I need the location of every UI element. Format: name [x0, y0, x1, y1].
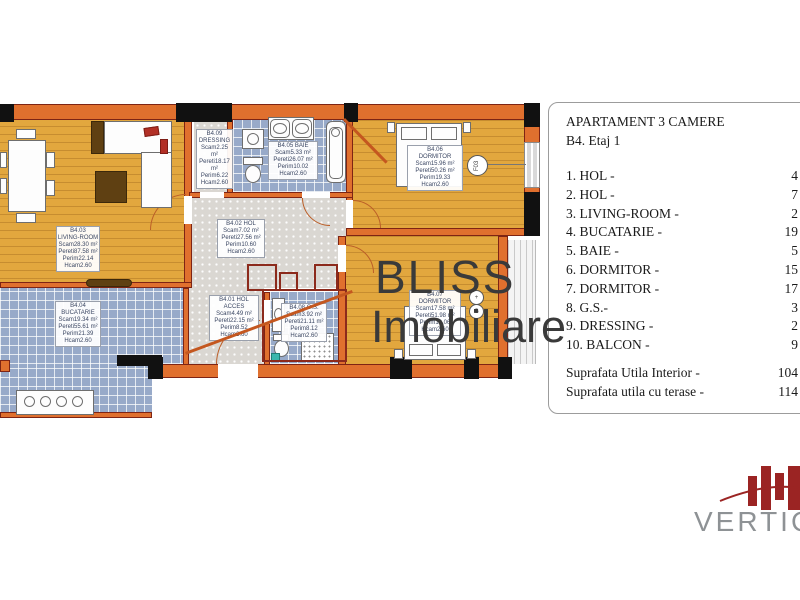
chair	[0, 178, 7, 194]
area-row-label: 9. DRESSING -	[566, 317, 653, 336]
chair	[46, 180, 55, 196]
nightstand	[387, 122, 395, 133]
nightstand	[467, 349, 476, 359]
room-label-b4-04: B4.04BUCATARIEScam19.34 m²Pereti55.61 m²…	[55, 301, 101, 347]
pillow	[431, 127, 457, 140]
utility-marker: G	[469, 304, 484, 319]
panel-totals: Suprafata Utila Interior -104Suprafata u…	[566, 364, 798, 402]
page: { "panel": { "title": "APARTAMENT 3 CAME…	[0, 0, 800, 600]
area-row-label: 5. BAIE -	[566, 242, 619, 261]
area-row-label: 2. HOL -	[566, 186, 615, 205]
dining-table	[8, 140, 46, 212]
gs-fixture	[271, 353, 280, 362]
area-row-value: 5	[791, 242, 798, 261]
room-label-b4-02: B4.02 HOLScam7.02 m²Pereti27.56 m²Perim1…	[217, 219, 265, 258]
area-row-value: 4	[791, 167, 798, 186]
pillow	[409, 344, 433, 356]
utility-marker: +	[469, 290, 484, 305]
chair	[16, 129, 36, 139]
window-tag-f03: F03	[467, 155, 488, 176]
area-row-value: 17	[785, 280, 799, 299]
area-row: 8. G.S.-3	[566, 299, 798, 318]
utility-marker-glyph: +	[475, 295, 479, 301]
window-leader-line	[486, 164, 526, 165]
brand-logo-text: VERTICA	[694, 506, 800, 538]
wall-kitchen-hall	[183, 288, 189, 366]
door-opening	[338, 245, 346, 272]
entry-door-opening	[218, 364, 258, 378]
area-row: 6. DORMITOR -15	[566, 261, 798, 280]
apartment-info-panel: APARTAMENT 3 CAMERE B4. Etaj 1 1. HOL -4…	[548, 102, 800, 414]
area-row: 7. DORMITOR -17	[566, 280, 798, 299]
balcony-railing	[508, 240, 536, 364]
wall-bottom	[148, 364, 512, 378]
utility-marker-glyph: G	[474, 309, 479, 315]
pillow	[437, 344, 461, 356]
room-label-b4-03: B4.03LIVING-ROOMScam28.30 m²Pereti87.58 …	[56, 226, 100, 272]
sofa	[141, 152, 172, 208]
total-row-value: 114	[778, 383, 798, 402]
column-block	[0, 104, 14, 122]
total-row-label: Suprafata utila cu terase -	[566, 383, 704, 402]
window	[524, 142, 540, 188]
area-row-value: 2	[791, 205, 798, 224]
area-row-value: 15	[785, 261, 799, 280]
panel-items: 1. HOL -42. HOL -73. LIVING-ROOM -24. BU…	[566, 167, 798, 355]
washing-machine-door	[247, 133, 259, 145]
area-row-value: 9	[791, 336, 798, 355]
column-block	[524, 192, 540, 236]
wall-bedroom-divider	[346, 228, 540, 236]
area-row-label: 10. BALCON -	[566, 336, 650, 355]
column-block	[524, 103, 540, 127]
chair	[0, 152, 7, 168]
total-row: Suprafata Utila Interior -104	[566, 364, 798, 383]
area-row: 10. BALCON -9	[566, 336, 798, 355]
coffee-table	[95, 171, 127, 203]
door-opening	[346, 200, 353, 228]
stove-burner	[24, 396, 35, 407]
total-row: Suprafata utila cu terase -114	[566, 383, 798, 402]
total-row-label: Suprafata Utila Interior -	[566, 364, 700, 383]
area-row-value: 19	[785, 223, 799, 242]
area-row-label: 3. LIVING-ROOM -	[566, 205, 679, 224]
column-block	[464, 357, 479, 379]
column-block	[148, 357, 163, 379]
tv-console	[86, 279, 132, 287]
nightstand	[394, 349, 403, 359]
chair	[46, 152, 55, 168]
bathtub-drain	[331, 128, 340, 137]
area-row: 3. LIVING-ROOM -2	[566, 205, 798, 224]
toilet-bowl	[245, 165, 261, 183]
nightstand	[463, 122, 471, 133]
door-opening	[264, 300, 270, 324]
room-label-b4-08: B4.08 G.S.Scam3.92 m²Pereti21.11 m²Perim…	[281, 303, 327, 342]
stove-burner	[40, 396, 51, 407]
wall-bedroom2-right	[498, 236, 508, 366]
room-label-b4-05: B4.05 BAIEScam5.33 m²Pereti26.07 m²Perim…	[268, 141, 318, 180]
area-row-label: 1. HOL -	[566, 167, 615, 186]
area-row: 1. HOL -4	[566, 167, 798, 186]
chair	[16, 213, 36, 223]
room-label-b4-09: B4.09DRESSINGScam2.25 m²Pereti18.17 m²Pe…	[196, 129, 233, 189]
room-label-b4-01: B4.01 HOLACCESScam4.49 m²Pereti22.15 m²P…	[209, 295, 259, 341]
area-row-label: 6. DORMITOR -	[566, 261, 659, 280]
sofa-cushion	[160, 139, 168, 154]
column-block	[344, 103, 358, 122]
stove-burner	[72, 396, 83, 407]
panel-title: APARTAMENT 3 CAMERE	[566, 112, 798, 131]
area-row: 5. BAIE -5	[566, 242, 798, 261]
pillow	[401, 127, 427, 140]
column-block	[498, 357, 512, 379]
wall-left-stub	[0, 360, 10, 372]
bath-sink-basin	[295, 123, 309, 134]
side-table	[91, 121, 104, 154]
area-row: 4. BUCATARIE -19	[566, 223, 798, 242]
area-row: 9. DRESSING -2	[566, 317, 798, 336]
column-block	[176, 103, 232, 122]
column-block	[390, 357, 412, 379]
area-row-label: 4. BUCATARIE -	[566, 223, 662, 242]
area-row-value: 2	[791, 317, 798, 336]
toilet-tank	[243, 157, 263, 165]
area-row-label: 8. G.S.-	[566, 299, 608, 318]
panel-subtitle: B4. Etaj 1	[566, 131, 798, 150]
area-row: 2. HOL -7	[566, 186, 798, 205]
area-row-value: 3	[791, 299, 798, 318]
room-label-b4-06: B4.06DORMITORScam15.96 m²Pereti50.26 m²P…	[407, 145, 463, 191]
area-row-value: 7	[791, 186, 798, 205]
total-row-value: 104	[778, 364, 798, 383]
stove-burner	[56, 396, 67, 407]
window-tag-label: F03	[475, 160, 481, 170]
panel-content: APARTAMENT 3 CAMERE B4. Etaj 1 1. HOL -4…	[566, 112, 798, 402]
room-label-b4-07: B4.07DORMITORScam17.58 m²Pereti51.98 m²P…	[409, 290, 461, 336]
area-row-label: 7. DORMITOR -	[566, 280, 659, 299]
door-opening	[200, 192, 224, 198]
bath-sink-basin	[273, 123, 287, 134]
